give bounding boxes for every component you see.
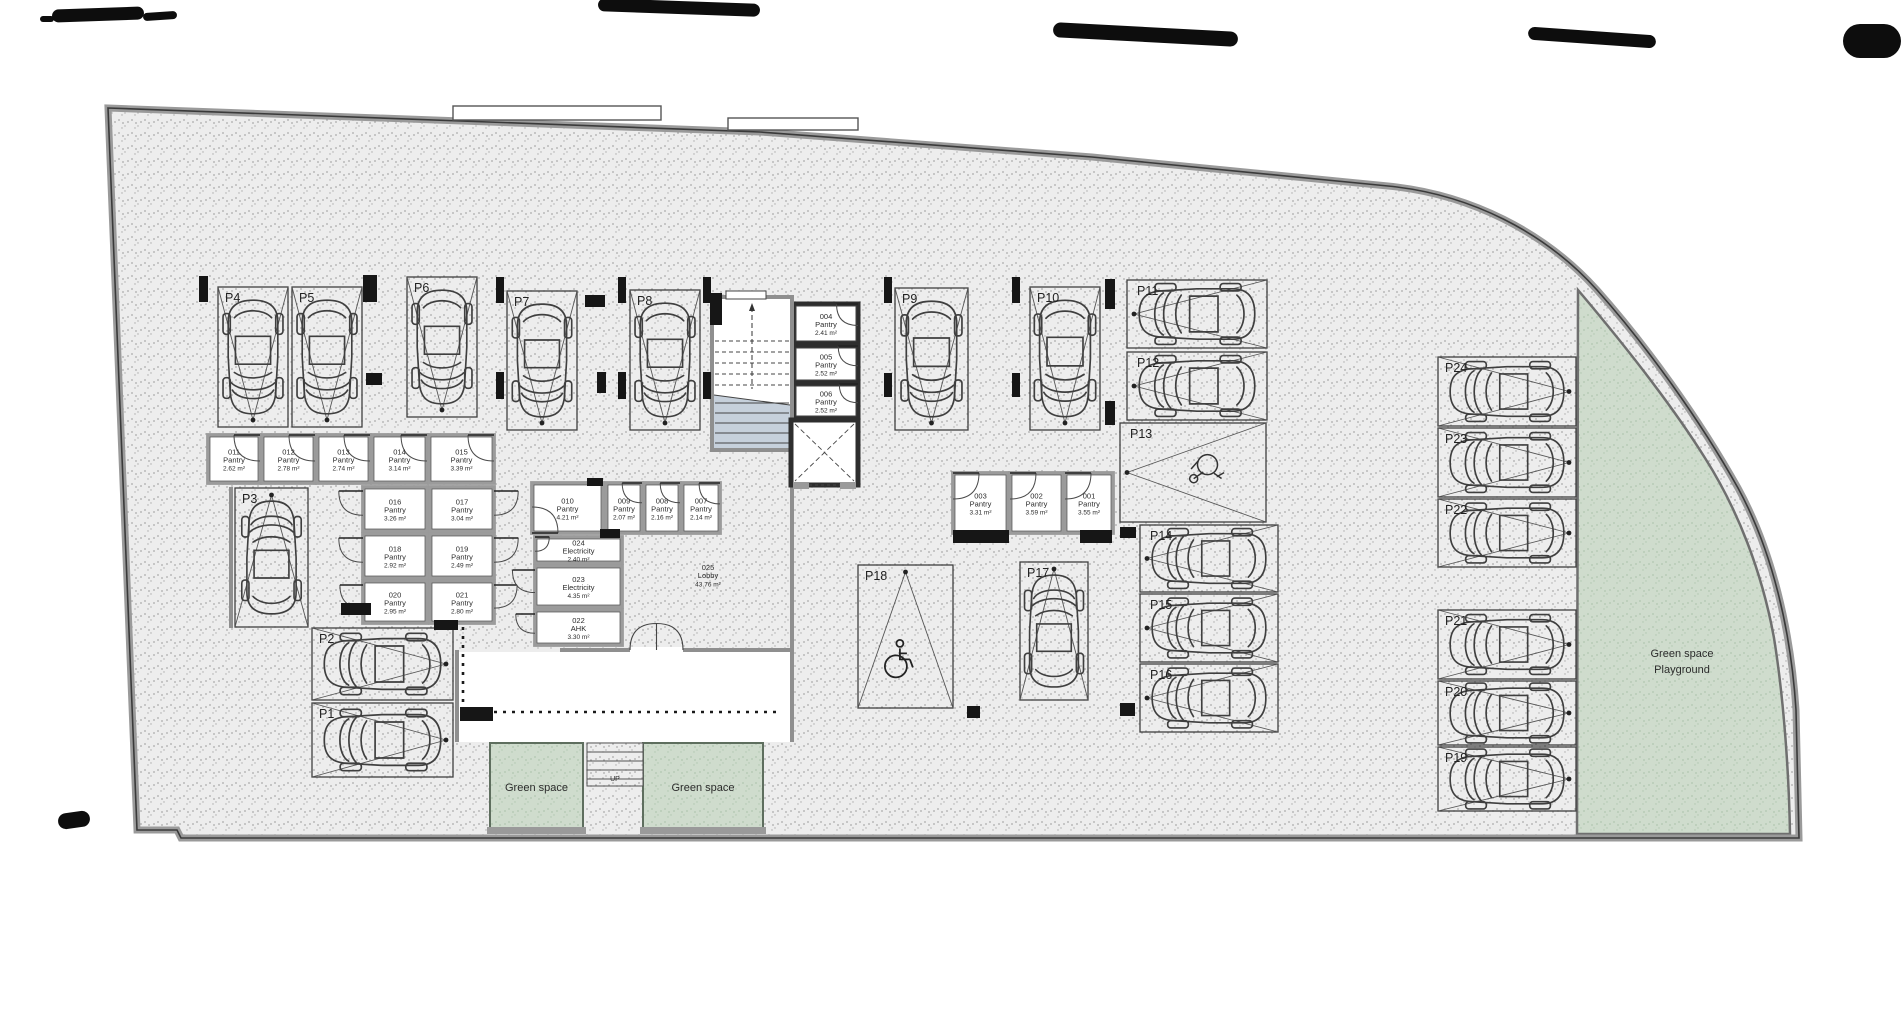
- parking-spot-label: P8: [637, 294, 652, 308]
- room-name: Pantry: [815, 320, 837, 329]
- room-area: 2.16 m²: [651, 515, 674, 522]
- spot-guide-dot: [1567, 531, 1572, 536]
- stairwell: [712, 291, 792, 450]
- room-name: Pantry: [451, 553, 473, 562]
- parking-spot-label: P12: [1137, 356, 1159, 370]
- room-area: 2.92 m²: [384, 563, 407, 570]
- parking-spot-label: P20: [1445, 685, 1467, 699]
- parking-spot-label: P7: [514, 295, 529, 309]
- parking-spot-label: P21: [1445, 614, 1467, 628]
- room-name: Pantry: [223, 456, 245, 465]
- green-space-label: Green space: [672, 782, 735, 794]
- scan-smudge: [1053, 22, 1239, 47]
- room-name: Pantry: [613, 505, 635, 514]
- structural-column: [618, 277, 626, 303]
- room-009: 009Pantry2.07 m²: [606, 483, 642, 533]
- structural-column: [199, 276, 208, 302]
- structural-column: [1012, 277, 1020, 303]
- room-name: Pantry: [970, 500, 992, 509]
- structural-column: [1105, 279, 1115, 309]
- stair-landing: [726, 291, 766, 299]
- room-name: Lobby: [698, 571, 719, 580]
- structural-column: [710, 293, 722, 325]
- scan-smudge: [57, 810, 91, 830]
- parking-spot-label: P22: [1445, 503, 1467, 517]
- structural-column: [884, 277, 892, 303]
- structural-column: [953, 530, 1009, 543]
- room-area: 2.80 m²: [451, 609, 474, 616]
- room-013: 013Pantry2.74 m²: [317, 435, 370, 483]
- room-area: 3.31 m²: [969, 510, 992, 517]
- parking-spot-label: P10: [1037, 291, 1059, 305]
- entrance-canopy: [728, 118, 858, 130]
- spot-guide-dot: [1567, 460, 1572, 465]
- spot-guide-dot: [1132, 312, 1137, 317]
- parking-spot-label: P13: [1130, 427, 1152, 441]
- spot-guide-dot: [269, 493, 274, 498]
- room-area: 3.14 m²: [388, 466, 411, 473]
- elevator-door-jamb: [793, 482, 809, 489]
- room-name: Pantry: [333, 456, 355, 465]
- spot-guide-dot: [1063, 421, 1068, 426]
- room-area: 2.62 m²: [223, 466, 246, 473]
- spot-guide-dot: [440, 408, 445, 413]
- structural-column: [460, 707, 493, 721]
- room-area: 2.52 m²: [815, 408, 838, 415]
- spot-guide-dot: [251, 418, 256, 423]
- spot-guide-dot: [929, 421, 934, 426]
- parking-spot-label: P3: [242, 492, 257, 506]
- spot-guide-dot: [540, 421, 545, 426]
- parking-spot-label: P23: [1445, 432, 1467, 446]
- spot-guide-dot: [1567, 389, 1572, 394]
- structural-column: [1120, 703, 1135, 716]
- room-area: 2.41 m²: [815, 330, 838, 337]
- elevator-door-jamb: [840, 482, 856, 489]
- room-003: 003Pantry3.31 m²: [953, 473, 1008, 533]
- room-008: 008Pantry2.16 m²: [644, 483, 680, 533]
- room-007: 007Pantry2.14 m²: [682, 483, 720, 533]
- parking-spot-label: P1: [319, 707, 334, 721]
- structural-column: [618, 372, 626, 399]
- scan-smudge: [40, 16, 54, 22]
- parking-spot-label: P6: [414, 281, 429, 295]
- room-area: 3.04 m²: [451, 516, 474, 523]
- structural-column: [363, 275, 377, 302]
- room-area: 2.14 m²: [690, 515, 713, 522]
- structural-column: [587, 478, 603, 486]
- structural-column: [366, 373, 382, 385]
- exterior-walkway: [457, 652, 792, 742]
- room-name: Pantry: [1026, 500, 1048, 509]
- room-name: Pantry: [557, 505, 579, 514]
- structural-column: [597, 372, 606, 393]
- spot-guide-dot: [663, 421, 668, 426]
- scan-smudge: [52, 6, 144, 22]
- up-label: UP: [610, 776, 620, 783]
- room-004: 004Pantry2.41 m²: [794, 304, 858, 343]
- spot-guide-dot: [325, 418, 330, 423]
- room-name: Pantry: [1078, 500, 1100, 509]
- elevator: [791, 420, 858, 489]
- parking-spot-label: P15: [1150, 598, 1172, 612]
- scan-smudge: [1843, 24, 1901, 58]
- spot-guide-dot: [1145, 556, 1150, 561]
- room-name: Pantry: [451, 599, 473, 608]
- room-area: 2.95 m²: [384, 609, 407, 616]
- room-name: Pantry: [384, 553, 406, 562]
- structural-column: [1080, 530, 1112, 543]
- structural-column: [496, 277, 504, 303]
- room-area: 3.39 m²: [450, 466, 473, 473]
- room-name: Pantry: [651, 505, 673, 514]
- spot-guide-dot: [1567, 642, 1572, 647]
- playground-label-line2: Playground: [1654, 664, 1710, 676]
- parking-spot-label: P24: [1445, 361, 1467, 375]
- structural-column: [341, 603, 371, 615]
- entrance-canopy: [453, 106, 661, 120]
- scan-smudge: [143, 11, 177, 21]
- room-011: 011Pantry2.62 m²: [208, 435, 260, 483]
- room-name: AHK: [571, 624, 586, 633]
- room-area: 3.30 m²: [567, 634, 590, 641]
- spot-guide-dot: [1145, 696, 1150, 701]
- structural-column: [703, 277, 711, 303]
- room-area: 3.55 m²: [1078, 510, 1101, 517]
- floor-plan-page: Green spaceGreen spaceUP011Pantry2.62 m²…: [0, 0, 1904, 1010]
- structural-column: [1012, 373, 1020, 397]
- room-area: 3.59 m²: [1025, 510, 1048, 517]
- room-area: 2.52 m²: [815, 371, 838, 378]
- room-area: 4.35 m²: [567, 593, 590, 600]
- parking-spot-label: P18: [865, 569, 887, 583]
- room-area: 4.21 m²: [556, 515, 579, 522]
- structural-column: [884, 373, 892, 397]
- spot-guide-dot: [1567, 711, 1572, 716]
- spot-guide-dot: [444, 738, 449, 743]
- room-area: 43.76 m²: [695, 582, 721, 589]
- room-area: 2.49 m²: [451, 563, 474, 570]
- playground-label-line1: Green space: [1651, 648, 1714, 660]
- terrace-edge: [487, 827, 586, 834]
- room-010: 010Pantry4.21 m²: [532, 483, 603, 533]
- room-name: Pantry: [451, 506, 473, 515]
- room-001: 001Pantry3.55 m²: [1065, 473, 1113, 533]
- room-005: 005Pantry2.52 m²: [794, 346, 858, 382]
- room-area: 3.26 m²: [384, 516, 407, 523]
- parking-spot-label: P17: [1027, 566, 1049, 580]
- room-name: Pantry: [384, 599, 406, 608]
- scan-smudge: [1528, 27, 1657, 49]
- room-area: 2.40 m²: [567, 557, 590, 564]
- structural-column: [1120, 527, 1136, 538]
- room-name: Pantry: [389, 456, 411, 465]
- parking-spot-label: P2: [319, 632, 334, 646]
- room-area: 2.07 m²: [613, 515, 636, 522]
- spot-guide-dot: [1125, 470, 1130, 475]
- parking-spot-label: P11: [1137, 284, 1158, 298]
- room-area: 2.74 m²: [332, 466, 355, 473]
- room-024: 024Electricity2.40 m²: [535, 537, 622, 564]
- room-area: 2.78 m²: [277, 466, 300, 473]
- room-name: Pantry: [815, 398, 837, 407]
- green-space-label: Green space: [505, 782, 568, 794]
- terrace-edge: [640, 827, 766, 834]
- room-name: Pantry: [451, 456, 473, 465]
- spot-guide-dot: [444, 662, 449, 667]
- floor-plan-svg: Green spaceGreen spaceUP011Pantry2.62 m²…: [0, 0, 1904, 1010]
- spot-guide-dot: [1132, 384, 1137, 389]
- structural-column: [703, 372, 711, 399]
- parking-spot-label: P9: [902, 292, 917, 306]
- parking-spot-label: P5: [299, 291, 314, 305]
- room-012: 012Pantry2.78 m²: [262, 435, 315, 483]
- parking-spot-label: P4: [225, 291, 240, 305]
- structural-column: [585, 295, 605, 307]
- room-name: Electricity: [562, 583, 594, 592]
- room-name: Pantry: [278, 456, 300, 465]
- spot-guide-dot: [1145, 626, 1150, 631]
- parking-spot-label: P16: [1150, 668, 1172, 682]
- room-014: 014Pantry3.14 m²: [372, 435, 427, 483]
- room-name: Pantry: [690, 505, 712, 514]
- room-015: 015Pantry3.39 m²: [429, 435, 494, 483]
- structural-column: [496, 372, 504, 399]
- scan-smudge: [598, 0, 760, 17]
- room-002: 002Pantry3.59 m²: [1010, 473, 1063, 533]
- parking-spot-label: P14: [1150, 529, 1172, 543]
- room-006: 006Pantry2.52 m²: [794, 384, 858, 418]
- spot-guide-dot: [903, 570, 908, 575]
- room-name: Pantry: [384, 506, 406, 515]
- room-name: Pantry: [815, 361, 837, 370]
- structural-column: [600, 529, 620, 538]
- structural-column: [967, 706, 980, 718]
- room-name: Electricity: [562, 547, 594, 556]
- parking-spot-label: P19: [1445, 751, 1467, 765]
- spot-guide-dot: [1567, 777, 1572, 782]
- spot-guide-dot: [1052, 567, 1057, 572]
- structural-column: [434, 620, 458, 630]
- structural-column: [1105, 401, 1115, 425]
